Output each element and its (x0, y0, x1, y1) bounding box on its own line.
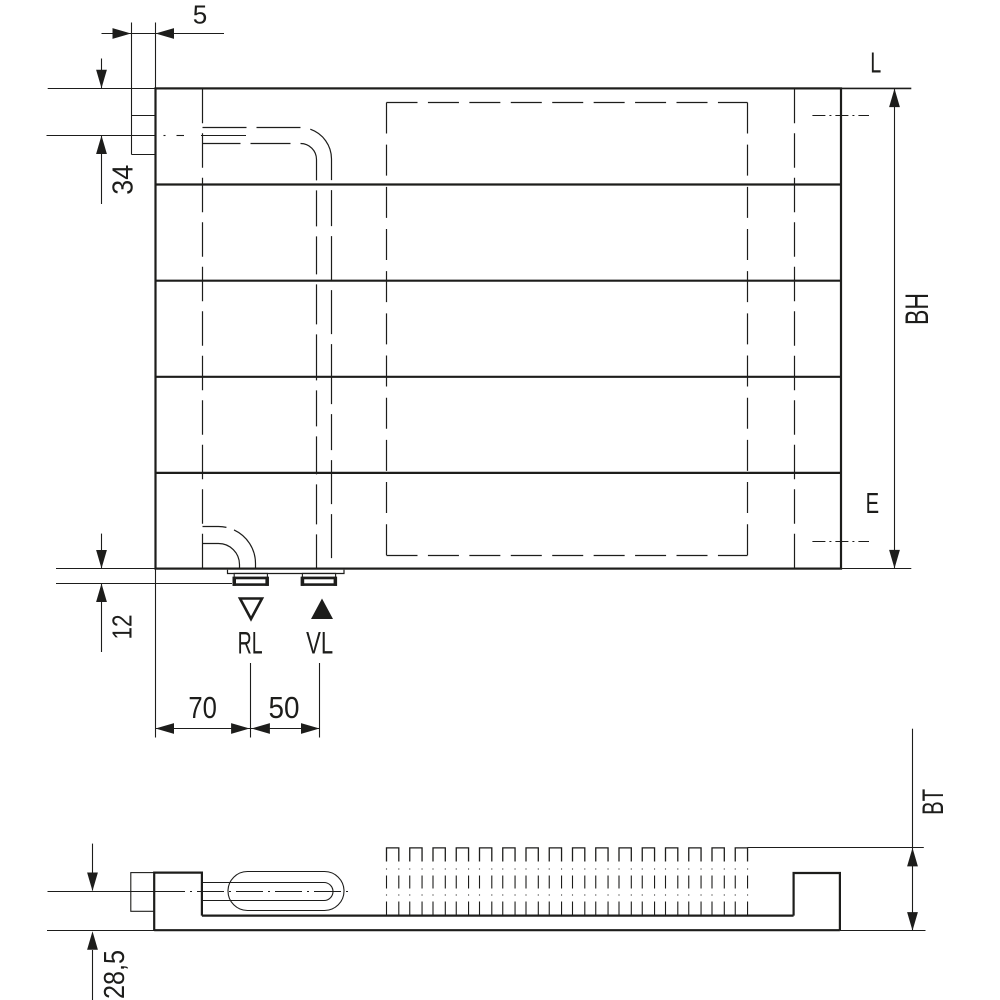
svg-text:E: E (866, 488, 880, 520)
svg-text:34: 34 (108, 165, 140, 195)
svg-text:BT: BT (917, 789, 950, 815)
svg-text:L: L (870, 47, 881, 79)
svg-text:28,5: 28,5 (99, 950, 131, 999)
svg-text:BH: BH (899, 293, 935, 325)
svg-text:VL: VL (306, 625, 333, 661)
svg-text:70: 70 (188, 690, 217, 725)
svg-text:50: 50 (269, 690, 300, 725)
svg-text:5: 5 (193, 0, 207, 29)
svg-text:12: 12 (106, 615, 137, 640)
svg-text:RL: RL (238, 625, 263, 661)
